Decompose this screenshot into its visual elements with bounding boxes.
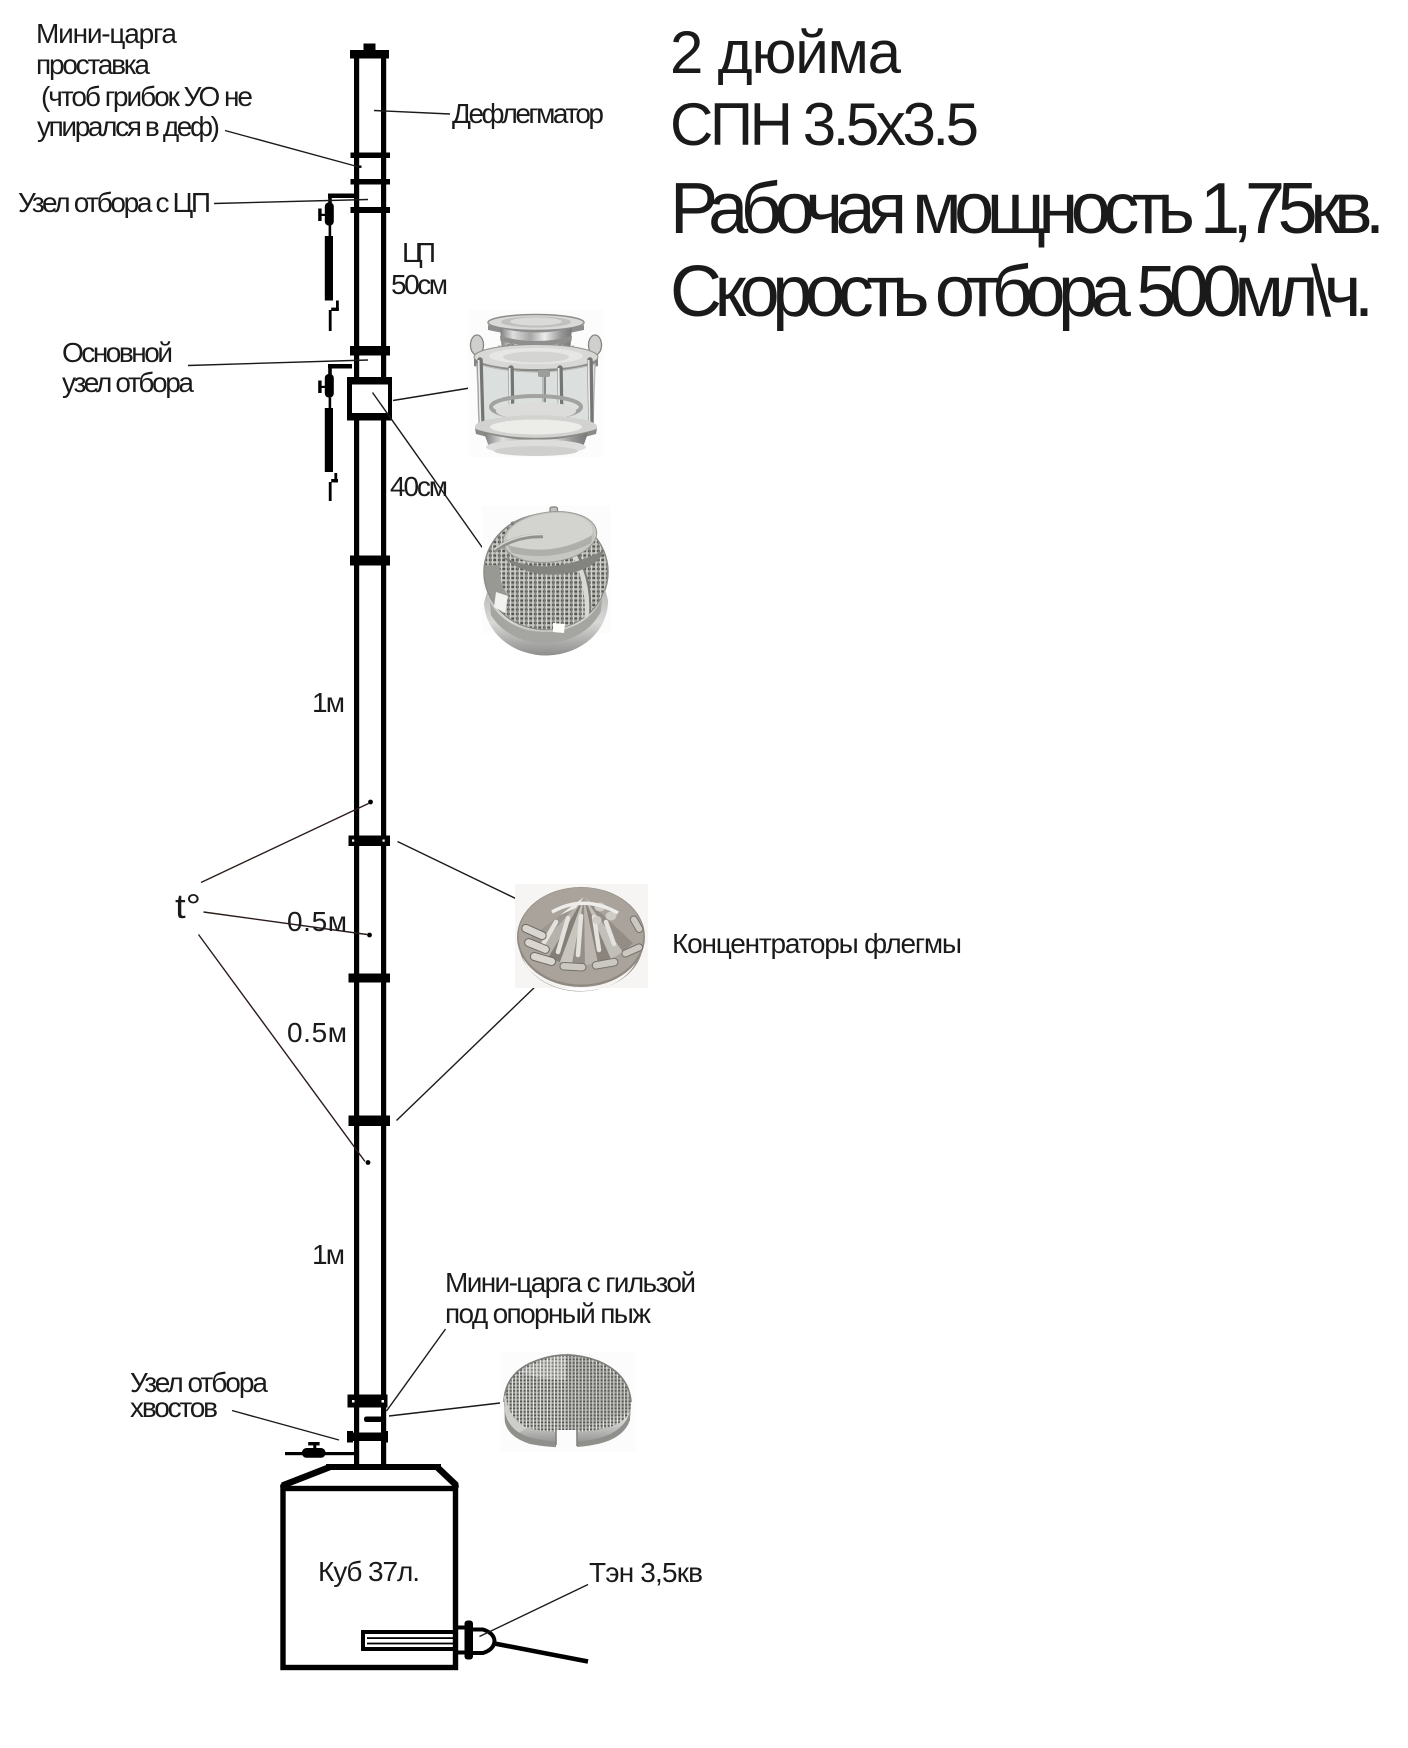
svg-text:упирался в деф): упирался в деф) xyxy=(37,111,220,142)
svg-text:под опорный пыж: под опорный пыж xyxy=(445,1298,651,1329)
svg-text:Скорость отбора 500мл\ч.: Скорость отбора 500мл\ч. xyxy=(670,252,1374,332)
svg-text:0.5м: 0.5м xyxy=(287,906,347,937)
svg-text:1м: 1м xyxy=(312,687,345,718)
svg-text:хвостов: хвостов xyxy=(130,1392,218,1423)
svg-text:Мини-царга с гильзой: Мини-царга с гильзой xyxy=(445,1267,696,1298)
svg-text:Концентраторы флегмы: Концентраторы флегмы xyxy=(672,928,962,959)
svg-text:1м: 1м xyxy=(312,1239,345,1270)
svg-text:50см: 50см xyxy=(391,269,448,300)
svg-text:2 дюйма: 2 дюйма xyxy=(670,19,902,86)
svg-text:40см: 40см xyxy=(390,471,448,502)
svg-text:Тэн 3,5кв: Тэн 3,5кв xyxy=(589,1557,703,1588)
svg-text:ЦП: ЦП xyxy=(402,237,436,268)
svg-text:проставка: проставка xyxy=(36,49,150,80)
svg-text:Мини-царга: Мини-царга xyxy=(36,18,177,49)
svg-text:Узел отбора с ЦП: Узел отбора с ЦП xyxy=(18,187,211,218)
svg-text:Куб 37л.: Куб 37л. xyxy=(318,1556,420,1587)
svg-text:0.5м: 0.5м xyxy=(287,1017,347,1048)
svg-text:СПН 3.5х3.5: СПН 3.5х3.5 xyxy=(670,91,979,158)
svg-text:t°: t° xyxy=(175,888,201,926)
svg-text:Дефлегматор: Дефлегматор xyxy=(452,98,604,129)
svg-text:Рабочая мощность 1,75кв.: Рабочая мощность 1,75кв. xyxy=(670,169,1385,249)
svg-text:(чтоб грибок УО не: (чтоб грибок УО не xyxy=(41,81,253,112)
svg-text:Основной: Основной xyxy=(62,337,173,368)
svg-text:узел отбора: узел отбора xyxy=(62,367,194,398)
